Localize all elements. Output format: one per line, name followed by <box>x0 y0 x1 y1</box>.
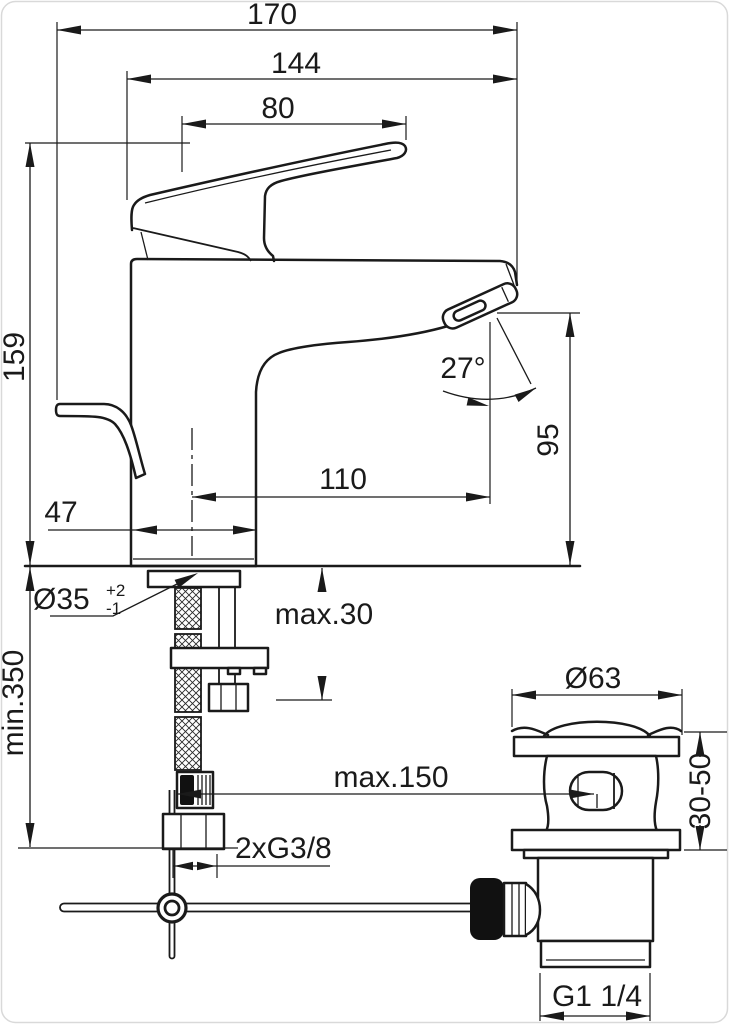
clamp-foot <box>254 668 266 674</box>
dim-max150: max.150 <box>177 761 594 799</box>
dim-144-label: 144 <box>271 47 321 80</box>
rod-pivot <box>158 894 186 922</box>
waste-lower-flange <box>512 830 680 850</box>
pop-up-rod-horizontal <box>60 904 471 912</box>
dim-27-label: 27° <box>440 352 485 385</box>
dim-g114-label: G1 1/4 <box>552 980 642 1013</box>
mounting-clamp <box>171 648 268 668</box>
base-seal <box>148 571 240 587</box>
faucet-handle <box>131 143 406 261</box>
hose-nut <box>163 814 224 849</box>
rod-ball-joint <box>470 878 540 940</box>
dim-95-label: 95 <box>532 423 565 456</box>
faucet-dimension-drawing: 170 144 80 159 27° 9 <box>0 0 729 1024</box>
technical-drawing-page: 170 144 80 159 27° 9 <box>0 0 729 1024</box>
dim-63: Ø63 <box>512 662 682 735</box>
dim-max30: max.30 <box>275 568 373 700</box>
dim-47: 47 <box>44 496 257 535</box>
clamp-foot <box>228 668 240 674</box>
dim-80: 80 <box>182 92 406 172</box>
dim-35-tol-plus: +2 <box>106 581 125 600</box>
dim-110: 110 <box>192 463 490 502</box>
dim-max150-label: max.150 <box>333 761 448 794</box>
dim-30-50: 30-50 <box>684 732 727 850</box>
handle-rear-leg <box>141 232 148 260</box>
supply-hose <box>175 588 201 770</box>
dim-35-label: Ø35 <box>33 583 90 616</box>
waste-tailpiece <box>538 858 653 941</box>
waste-plug <box>512 722 681 736</box>
dim-110-label: 110 <box>319 463 367 496</box>
dim-95: 95 <box>497 313 580 565</box>
waste-assembly <box>470 722 681 967</box>
mounting-nut <box>209 684 248 711</box>
hose-thread-collar <box>177 772 213 808</box>
dim-159-label: 159 <box>0 332 31 382</box>
waste-thread <box>541 941 650 967</box>
dim-63-label: Ø63 <box>565 662 622 695</box>
handle-underside <box>133 228 251 261</box>
dim-159: 159 <box>0 143 190 565</box>
waste-upper-flange <box>514 737 679 756</box>
dim-min350-label: min.350 <box>0 650 30 757</box>
dim-max30-label: max.30 <box>275 598 373 631</box>
dim-170-label: 170 <box>247 0 297 31</box>
dim-g114: G1 1/4 <box>540 973 650 1021</box>
aerator <box>440 280 520 331</box>
dim-47-label: 47 <box>44 496 77 529</box>
dim-30-50-label: 30-50 <box>684 753 717 830</box>
dim-80-label: 80 <box>261 92 294 125</box>
ball-joint-black-fitting <box>470 878 504 940</box>
dim-angle-27: 27° <box>440 318 538 504</box>
dim-g38-label: 2xG3/8 <box>235 832 332 865</box>
